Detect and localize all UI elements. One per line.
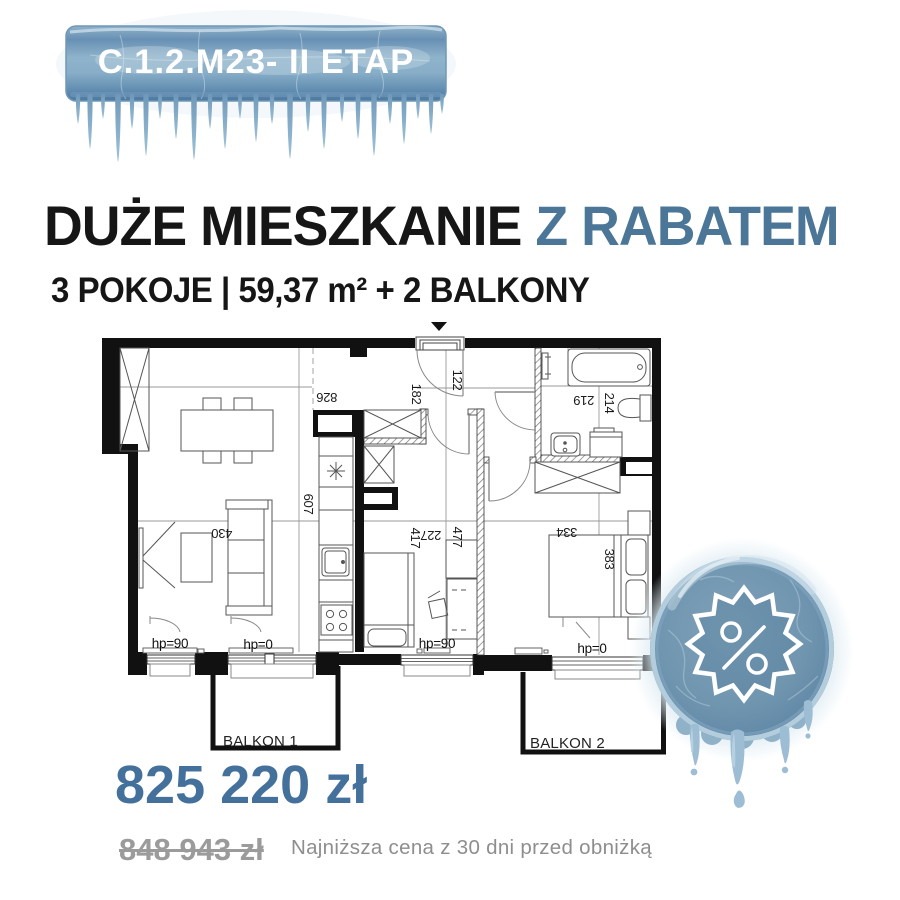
- svg-text:214: 214: [602, 393, 617, 414]
- svg-text:BALKON 2: BALKON 2: [530, 735, 605, 752]
- svg-text:219: 219: [574, 393, 595, 408]
- svg-text:430: 430: [212, 526, 233, 541]
- svg-text:607: 607: [301, 494, 316, 515]
- svg-text:477: 477: [450, 527, 465, 548]
- svg-text:182: 182: [409, 384, 424, 405]
- svg-text:334: 334: [557, 525, 578, 540]
- svg-text:122: 122: [450, 370, 465, 391]
- svg-text:826: 826: [317, 390, 338, 405]
- svg-text:BALKON 1: BALKON 1: [223, 733, 298, 750]
- svg-text:hp=90: hp=90: [152, 636, 188, 651]
- svg-text:hp=90: hp=90: [419, 636, 455, 651]
- svg-text:C.1.2.M23- II ETAP: C.1.2.M23- II ETAP: [98, 43, 414, 81]
- svg-text:hp=0: hp=0: [577, 641, 606, 656]
- svg-text:227: 227: [421, 528, 442, 543]
- svg-text:383: 383: [602, 549, 617, 570]
- svg-text:hp=0: hp=0: [243, 637, 272, 652]
